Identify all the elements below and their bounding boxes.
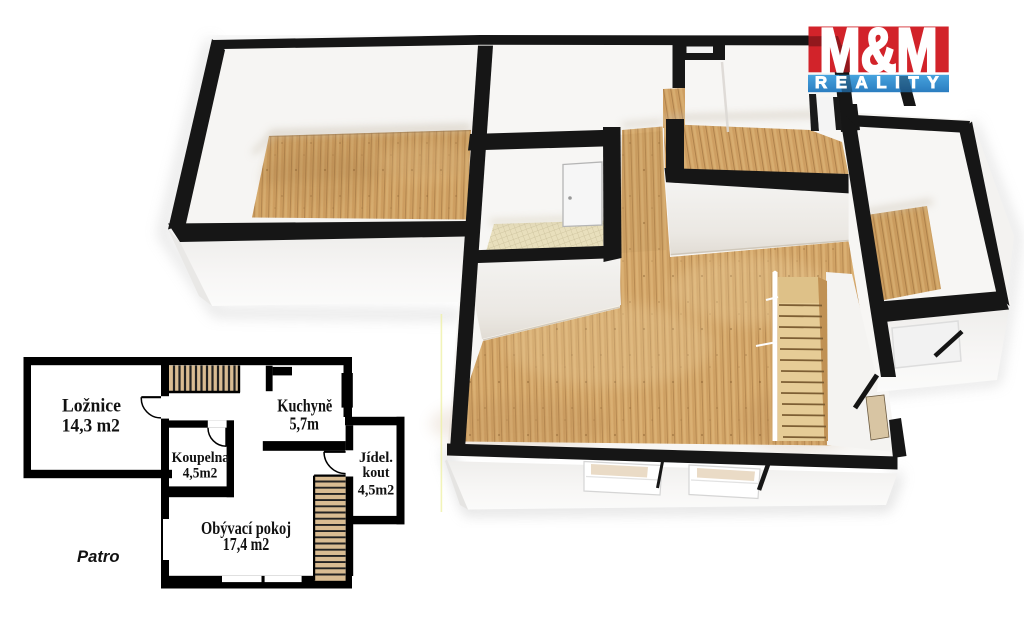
svg-text:4,5m2: 4,5m2 xyxy=(358,483,395,499)
svg-text:14,3 m2: 14,3 m2 xyxy=(62,417,120,437)
svg-text:5,7m: 5,7m xyxy=(289,413,319,433)
svg-text:kout: kout xyxy=(363,465,390,481)
svg-text:REALITY: REALITY xyxy=(815,73,947,92)
svg-text:Patro: Patro xyxy=(77,547,120,566)
svg-text:Ložnice: Ložnice xyxy=(62,397,121,417)
svg-text:17,4 m2: 17,4 m2 xyxy=(223,534,270,554)
svg-text:Jídel.: Jídel. xyxy=(359,450,393,466)
svg-text:4,5m2: 4,5m2 xyxy=(183,466,218,482)
svg-text:Kuchyně: Kuchyně xyxy=(277,395,332,415)
svg-text:Koupelna: Koupelna xyxy=(172,450,230,466)
